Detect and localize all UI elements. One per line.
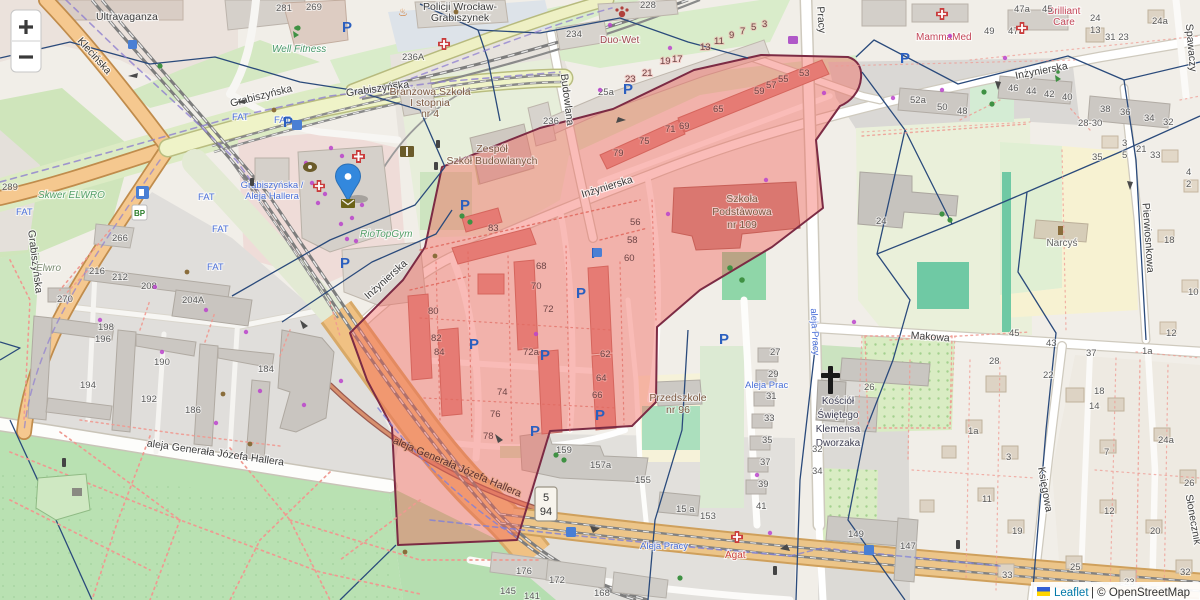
svg-text:4: 4 <box>1186 167 1191 178</box>
svg-text:FAT: FAT <box>212 224 229 235</box>
svg-text:57: 57 <box>766 80 777 91</box>
svg-text:17: 17 <box>672 54 683 65</box>
svg-text:212: 212 <box>112 272 128 283</box>
svg-text:24a: 24a <box>1158 435 1175 446</box>
svg-text:35: 35 <box>762 435 773 446</box>
svg-text:Aleja Hallera: Aleja Hallera <box>245 191 300 202</box>
svg-text:3: 3 <box>762 19 767 30</box>
svg-text:40: 40 <box>1062 92 1073 103</box>
svg-text:Leaflet: Leaflet <box>1054 587 1089 599</box>
svg-text:216: 216 <box>89 266 105 277</box>
svg-text:27: 27 <box>770 347 781 358</box>
svg-text:Podstàwowa: Podstàwowa <box>712 206 772 218</box>
svg-text:nr 4: nr 4 <box>421 108 439 120</box>
svg-text:RioTopGym: RioTopGym <box>360 229 412 240</box>
svg-text:270: 270 <box>57 294 73 305</box>
svg-text:7: 7 <box>740 26 745 37</box>
svg-text:198: 198 <box>98 322 114 333</box>
svg-text:P: P <box>342 19 352 36</box>
svg-text:14: 14 <box>1089 401 1100 412</box>
svg-text:82: 82 <box>431 333 442 344</box>
svg-text:190: 190 <box>154 357 170 368</box>
svg-text:55: 55 <box>778 74 789 85</box>
svg-text:75: 75 <box>639 136 650 147</box>
svg-text:52a: 52a <box>910 95 927 106</box>
svg-text:186: 186 <box>185 405 201 416</box>
svg-text:72: 72 <box>543 304 554 315</box>
svg-text:64: 64 <box>596 373 607 384</box>
svg-text:33: 33 <box>764 413 775 424</box>
svg-text:157a: 157a <box>590 460 612 471</box>
svg-text:94: 94 <box>540 506 552 518</box>
svg-text:289: 289 <box>2 182 18 193</box>
svg-text:5: 5 <box>1122 150 1127 161</box>
svg-text:35: 35 <box>1092 152 1103 163</box>
svg-text:65: 65 <box>713 104 724 115</box>
svg-text:3: 3 <box>1006 452 1011 463</box>
svg-text:Ultravaganza: Ultravaganza <box>96 11 158 23</box>
svg-text:24: 24 <box>876 216 887 227</box>
svg-text:76: 76 <box>490 409 501 420</box>
svg-text:269: 269 <box>306 2 322 13</box>
svg-text:79: 79 <box>613 148 624 159</box>
svg-text:2: 2 <box>1186 179 1191 190</box>
svg-text:9: 9 <box>729 30 734 41</box>
svg-text:69: 69 <box>679 121 690 132</box>
svg-text:21: 21 <box>642 68 653 79</box>
svg-text:236A: 236A <box>402 52 425 63</box>
svg-text:31: 31 <box>766 391 777 402</box>
svg-text:50: 50 <box>937 102 948 113</box>
svg-text:32: 32 <box>1163 117 1174 128</box>
svg-text:Szkół Budowlanych: Szkół Budowlanych <box>446 155 537 167</box>
svg-text:38: 38 <box>1100 104 1111 115</box>
svg-text:43: 43 <box>1046 338 1057 349</box>
svg-text:39: 39 <box>758 479 769 490</box>
svg-text:24a: 24a <box>1152 16 1169 27</box>
svg-text:194: 194 <box>80 380 96 391</box>
svg-text:32: 32 <box>812 444 823 455</box>
svg-text:58: 58 <box>627 235 638 246</box>
svg-text:53: 53 <box>799 68 810 79</box>
svg-text:♨: ♨ <box>398 7 408 19</box>
svg-text:33: 33 <box>1150 150 1161 161</box>
svg-text:72a: 72a <box>523 347 540 358</box>
svg-text:78: 78 <box>483 431 494 442</box>
svg-text:26: 26 <box>1184 478 1195 489</box>
svg-text:37: 37 <box>760 457 771 468</box>
svg-text:145: 145 <box>500 586 516 597</box>
svg-text:FAT: FAT <box>198 192 215 203</box>
svg-text:| © OpenStreetMap: | © OpenStreetMap <box>1091 587 1190 599</box>
svg-text:Przedszkole: Przedszkole <box>649 392 706 404</box>
svg-text:34: 34 <box>812 466 823 477</box>
svg-text:28: 28 <box>989 356 1000 367</box>
svg-text:56: 56 <box>630 217 641 228</box>
svg-text:Świętego: Świętego <box>817 408 859 421</box>
svg-text:176: 176 <box>516 566 532 577</box>
svg-text:33: 33 <box>1002 570 1013 581</box>
svg-text:Skwer ELWRO: Skwer ELWRO <box>38 190 105 201</box>
svg-text:15 a: 15 a <box>676 504 695 515</box>
svg-text:Aleja Prac: Aleja Prac <box>745 380 789 391</box>
svg-text:Klemensa: Klemensa <box>816 424 861 435</box>
svg-text:28-30: 28-30 <box>1078 118 1102 129</box>
svg-text:BP: BP <box>134 209 146 218</box>
svg-text:11: 11 <box>714 36 724 47</box>
svg-text:10: 10 <box>1188 287 1199 298</box>
svg-text:P: P <box>530 423 540 440</box>
svg-text:13: 13 <box>1090 25 1101 36</box>
svg-text:P: P <box>469 336 479 353</box>
svg-text:62: 62 <box>600 349 611 360</box>
svg-text:Grabiszynek: Grabiszynek <box>431 12 490 24</box>
svg-text:149: 149 <box>848 529 864 540</box>
svg-text:31 23: 31 23 <box>1105 32 1129 43</box>
svg-text:192: 192 <box>141 394 157 405</box>
svg-text:FAT: FAT <box>16 207 33 218</box>
svg-text:42: 42 <box>1044 89 1055 100</box>
svg-text:281: 281 <box>276 3 292 14</box>
svg-text:21: 21 <box>1136 144 1147 155</box>
svg-text:P: P <box>900 50 910 67</box>
svg-text:P: P <box>283 114 293 131</box>
svg-text:5: 5 <box>751 22 756 33</box>
svg-text:60: 60 <box>624 253 635 264</box>
svg-text:20: 20 <box>1150 526 1161 537</box>
svg-text:168: 168 <box>594 588 610 599</box>
svg-text:46: 46 <box>1008 83 1019 94</box>
svg-text:18: 18 <box>1094 386 1105 397</box>
svg-text:MammaMed: MammaMed <box>916 32 972 43</box>
svg-text:153: 153 <box>700 511 716 522</box>
svg-text:Elwro: Elwro <box>36 263 61 274</box>
svg-text:P: P <box>576 285 586 302</box>
svg-text:71: 71 <box>665 124 676 135</box>
svg-text:228: 228 <box>640 0 656 11</box>
svg-text:13: 13 <box>700 42 711 53</box>
svg-text:Well Fitness: Well Fitness <box>272 44 326 55</box>
svg-text:P: P <box>623 81 633 98</box>
svg-text:Agat: Agat <box>725 550 746 561</box>
svg-text:34: 34 <box>1144 113 1155 124</box>
svg-text:26: 26 <box>864 382 875 393</box>
svg-text:FAT: FAT <box>207 262 224 273</box>
svg-text:P: P <box>460 197 470 214</box>
svg-text:184: 184 <box>258 364 274 375</box>
svg-text:5: 5 <box>543 492 549 504</box>
svg-text:22: 22 <box>1043 370 1054 381</box>
svg-text:49: 49 <box>984 26 995 37</box>
svg-text:24: 24 <box>1090 13 1101 24</box>
svg-text:Zespół: Zespół <box>476 143 508 155</box>
svg-text:37: 37 <box>1086 348 1097 359</box>
svg-text:147: 147 <box>900 541 916 552</box>
svg-text:70: 70 <box>531 281 542 292</box>
svg-text:266: 266 <box>112 233 128 244</box>
svg-text:nr 109: nr 109 <box>727 219 757 231</box>
svg-text:47a: 47a <box>1014 4 1031 15</box>
svg-text:12: 12 <box>1166 328 1177 339</box>
svg-text:12: 12 <box>1104 506 1115 517</box>
svg-text:P: P <box>340 255 350 272</box>
svg-text:36: 36 <box>1120 107 1131 118</box>
svg-text:11: 11 <box>982 494 992 505</box>
svg-text:80: 80 <box>428 306 439 317</box>
svg-text:48: 48 <box>957 106 968 117</box>
svg-text:1a: 1a <box>1142 346 1153 357</box>
svg-text:Duo-Wet: Duo-Wet <box>600 35 639 46</box>
svg-text:Aleja Pracy: Aleja Pracy <box>640 541 688 552</box>
svg-text:236: 236 <box>543 116 559 127</box>
svg-text:45: 45 <box>1042 4 1053 15</box>
svg-text:44: 44 <box>1026 86 1037 97</box>
svg-text:FAT: FAT <box>232 112 249 123</box>
svg-text:P: P <box>719 331 729 348</box>
svg-text:68: 68 <box>536 261 547 272</box>
svg-text:32: 32 <box>1180 567 1191 578</box>
svg-text:41: 41 <box>756 501 767 512</box>
svg-text:Kościół: Kościół <box>822 396 855 407</box>
svg-text:29: 29 <box>768 369 779 380</box>
svg-text:1a: 1a <box>968 426 979 437</box>
svg-text:Pracy: Pracy <box>814 6 828 34</box>
svg-text:Narcyś: Narcyś <box>1046 238 1077 249</box>
svg-text:141: 141 <box>524 591 540 600</box>
svg-text:74: 74 <box>497 387 508 398</box>
svg-text:Care: Care <box>1053 17 1075 28</box>
svg-text:7: 7 <box>1104 447 1109 458</box>
svg-text:nr 96: nr 96 <box>666 404 690 416</box>
svg-text:84: 84 <box>434 347 445 358</box>
svg-text:172: 172 <box>549 575 565 586</box>
svg-text:204A: 204A <box>182 295 205 306</box>
svg-text:Szkoła: Szkoła <box>726 193 758 205</box>
svg-text:3: 3 <box>1122 138 1127 149</box>
svg-text:19: 19 <box>1012 526 1023 537</box>
svg-text:P: P <box>595 407 605 424</box>
svg-text:25: 25 <box>1070 562 1081 573</box>
svg-text:59: 59 <box>754 86 765 97</box>
svg-text:196: 196 <box>95 334 111 345</box>
svg-text:18: 18 <box>1164 235 1175 246</box>
svg-text:66: 66 <box>592 390 603 401</box>
svg-text:83: 83 <box>488 223 499 234</box>
svg-text:45: 45 <box>1009 328 1020 339</box>
svg-text:19: 19 <box>660 56 671 67</box>
svg-text:P: P <box>540 347 550 364</box>
svg-text:155: 155 <box>635 475 651 486</box>
svg-text:234: 234 <box>566 29 582 40</box>
